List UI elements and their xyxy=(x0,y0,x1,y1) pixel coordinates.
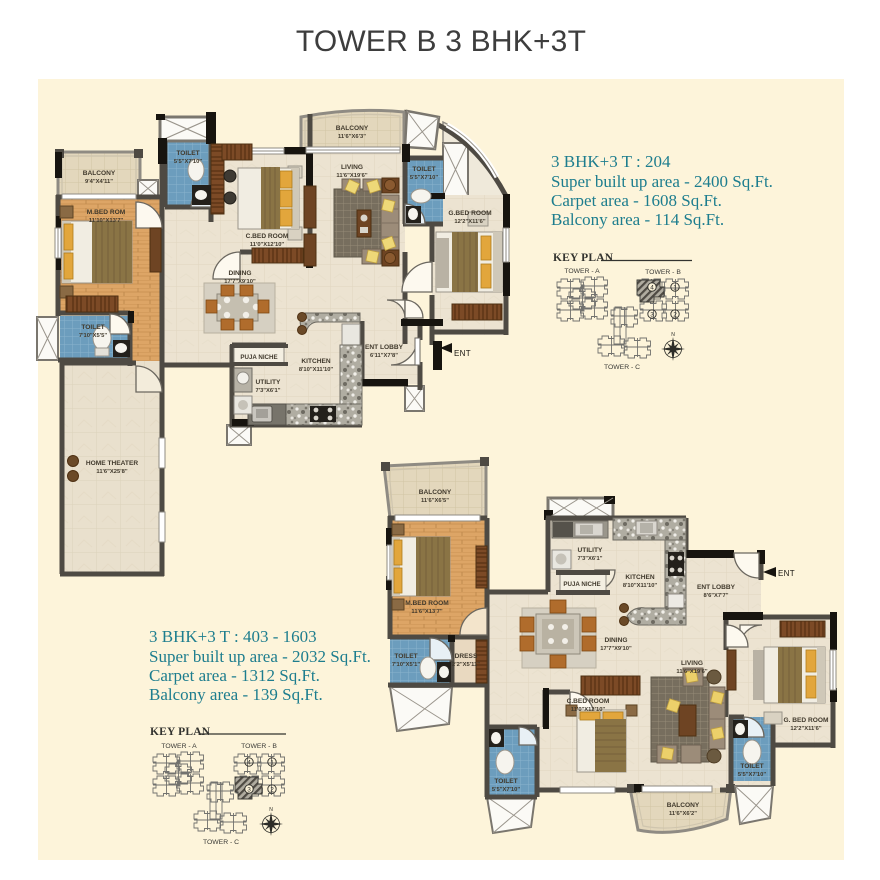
svg-text:TOILET: TOILET xyxy=(740,763,763,770)
svg-text:Carpet area - 1608 Sq.Ft.: Carpet area - 1608 Sq.Ft. xyxy=(551,191,722,210)
svg-text:7'3"X6'1": 7'3"X6'1" xyxy=(255,388,280,394)
svg-text:9'4"X4'11": 9'4"X4'11" xyxy=(85,179,113,185)
svg-text:2: 2 xyxy=(673,312,677,319)
svg-text:11'10"X13'7": 11'10"X13'7" xyxy=(89,218,124,224)
svg-text:11'6"X13'7": 11'6"X13'7" xyxy=(411,609,442,615)
svg-text:Balcony area - 114 Sq.Ft.: Balcony area - 114 Sq.Ft. xyxy=(551,210,724,229)
svg-text:1: 1 xyxy=(673,285,677,292)
svg-text:Super built up area - 2400 Sq.: Super built up area - 2400 Sq.Ft. xyxy=(551,172,773,191)
svg-text:11'6"X19'6": 11'6"X19'6" xyxy=(336,173,367,179)
svg-text:11'6"X19'6": 11'6"X19'6" xyxy=(676,669,707,675)
svg-text:N: N xyxy=(671,332,675,338)
svg-text:TOILET: TOILET xyxy=(412,166,435,173)
svg-text:12'2"X11'6": 12'2"X11'6" xyxy=(790,726,821,732)
svg-text:TOWER - B: TOWER - B xyxy=(241,743,277,750)
svg-text:G. BED ROOM: G. BED ROOM xyxy=(783,717,829,724)
svg-text:PUJA NICHE: PUJA NICHE xyxy=(563,581,600,588)
svg-text:11'6"X6'5": 11'6"X6'5" xyxy=(421,498,449,504)
svg-text:8'10"X11'10": 8'10"X11'10" xyxy=(623,583,658,589)
svg-text:TOWER B 3 BHK+3T: TOWER B 3 BHK+3T xyxy=(296,25,586,58)
svg-text:DINING: DINING xyxy=(604,637,627,644)
svg-text:5'5"X7'10": 5'5"X7'10" xyxy=(410,175,438,181)
svg-text:17'7"X9'10": 17'7"X9'10" xyxy=(224,279,256,285)
svg-text:C.BED ROOM: C.BED ROOM xyxy=(246,233,289,240)
svg-text:11'6"X6'2": 11'6"X6'2" xyxy=(669,811,697,817)
svg-text:M.BED ROOM: M.BED ROOM xyxy=(405,600,449,607)
svg-text:5'5"X7'10": 5'5"X7'10" xyxy=(492,787,520,793)
svg-text:3 BHK+3 T : 403 - 1603: 3 BHK+3 T : 403 - 1603 xyxy=(149,627,317,646)
svg-text:HOME THEATER: HOME THEATER xyxy=(86,460,138,467)
svg-text:Carpet area - 1312 Sq.Ft.: Carpet area - 1312 Sq.Ft. xyxy=(149,666,320,685)
svg-text:8'6"X7'7": 8'6"X7'7" xyxy=(703,593,728,599)
svg-text:12'2"X11'6": 12'2"X11'6" xyxy=(454,219,485,225)
svg-text:TOWER - B: TOWER - B xyxy=(645,269,681,276)
svg-text:6'11"X7'8": 6'11"X7'8" xyxy=(370,353,398,359)
svg-text:TOILET: TOILET xyxy=(394,653,417,660)
svg-text:11'6"X6'3": 11'6"X6'3" xyxy=(338,134,366,140)
svg-text:2: 2 xyxy=(270,787,274,794)
svg-text:BALCONY: BALCONY xyxy=(83,170,116,177)
svg-text:5'5"X7'10": 5'5"X7'10" xyxy=(174,159,202,165)
svg-text:3: 3 xyxy=(650,312,654,319)
svg-text:UTILITY: UTILITY xyxy=(256,379,282,386)
svg-text:KITCHEN: KITCHEN xyxy=(301,358,331,365)
svg-text:7'3"X6'1": 7'3"X6'1" xyxy=(577,556,602,562)
svg-text:BALCONY: BALCONY xyxy=(419,489,452,496)
svg-text:TOILET: TOILET xyxy=(494,778,517,785)
svg-text:Balcony area - 139 Sq.Ft.: Balcony area - 139 Sq.Ft. xyxy=(149,685,323,704)
svg-text:BALCONY: BALCONY xyxy=(667,802,700,809)
svg-text:TOWER - C: TOWER - C xyxy=(604,364,640,371)
svg-text:3: 3 xyxy=(247,787,251,794)
svg-text:M.BED ROM: M.BED ROM xyxy=(87,209,126,216)
svg-text:3 BHK+3 T : 204: 3 BHK+3 T : 204 xyxy=(551,152,671,171)
svg-text:PUJA NICHE: PUJA NICHE xyxy=(240,354,277,361)
svg-text:TOWER - A: TOWER - A xyxy=(564,268,600,275)
svg-text:8'10"X11'10": 8'10"X11'10" xyxy=(299,367,334,373)
svg-text:4: 4 xyxy=(247,760,251,767)
svg-text:TOWER - C: TOWER - C xyxy=(203,839,239,846)
svg-text:ENT LOBBY: ENT LOBBY xyxy=(365,344,404,351)
svg-text:KEY PLAN: KEY PLAN xyxy=(150,726,211,738)
svg-text:G.BED ROOM: G.BED ROOM xyxy=(448,210,492,217)
svg-text:7'10"X5'1": 7'10"X5'1" xyxy=(392,662,420,668)
svg-text:11'0"X12'10": 11'0"X12'10" xyxy=(250,242,285,248)
svg-text:KEY PLAN: KEY PLAN xyxy=(553,252,614,264)
svg-text:DRESS: DRESS xyxy=(455,653,478,660)
svg-text:LIVING: LIVING xyxy=(681,660,703,667)
svg-text:11'0"X12'10": 11'0"X12'10" xyxy=(571,707,606,713)
svg-text:1: 1 xyxy=(270,760,274,767)
svg-text:ENT: ENT xyxy=(778,569,795,578)
svg-text:UTILITY: UTILITY xyxy=(578,547,604,554)
svg-text:BALCONY: BALCONY xyxy=(336,125,369,132)
svg-text:LIVING: LIVING xyxy=(341,164,363,171)
svg-text:5'5"X7'10": 5'5"X7'10" xyxy=(738,772,766,778)
svg-text:TOILET: TOILET xyxy=(176,150,199,157)
svg-text:ENT LOBBY: ENT LOBBY xyxy=(697,584,736,591)
svg-text:7'10"X5'5": 7'10"X5'5" xyxy=(79,333,107,339)
svg-text:17'7"X9'10": 17'7"X9'10" xyxy=(600,646,632,652)
svg-text:N: N xyxy=(269,807,273,813)
svg-text:2'2"X5'11": 2'2"X5'11" xyxy=(452,662,480,668)
svg-text:ENT: ENT xyxy=(454,349,471,358)
svg-text:DINING: DINING xyxy=(228,270,251,277)
svg-text:11'6"X25'8": 11'6"X25'8" xyxy=(96,469,127,475)
svg-text:Super built up area - 2032 Sq.: Super built up area - 2032 Sq.Ft. xyxy=(149,647,371,666)
svg-text:TOILET: TOILET xyxy=(81,324,104,331)
svg-text:4: 4 xyxy=(650,285,654,292)
svg-text:C.BED ROOM: C.BED ROOM xyxy=(567,698,610,705)
svg-text:TOWER - A: TOWER - A xyxy=(161,743,197,750)
svg-text:KITCHEN: KITCHEN xyxy=(625,574,655,581)
